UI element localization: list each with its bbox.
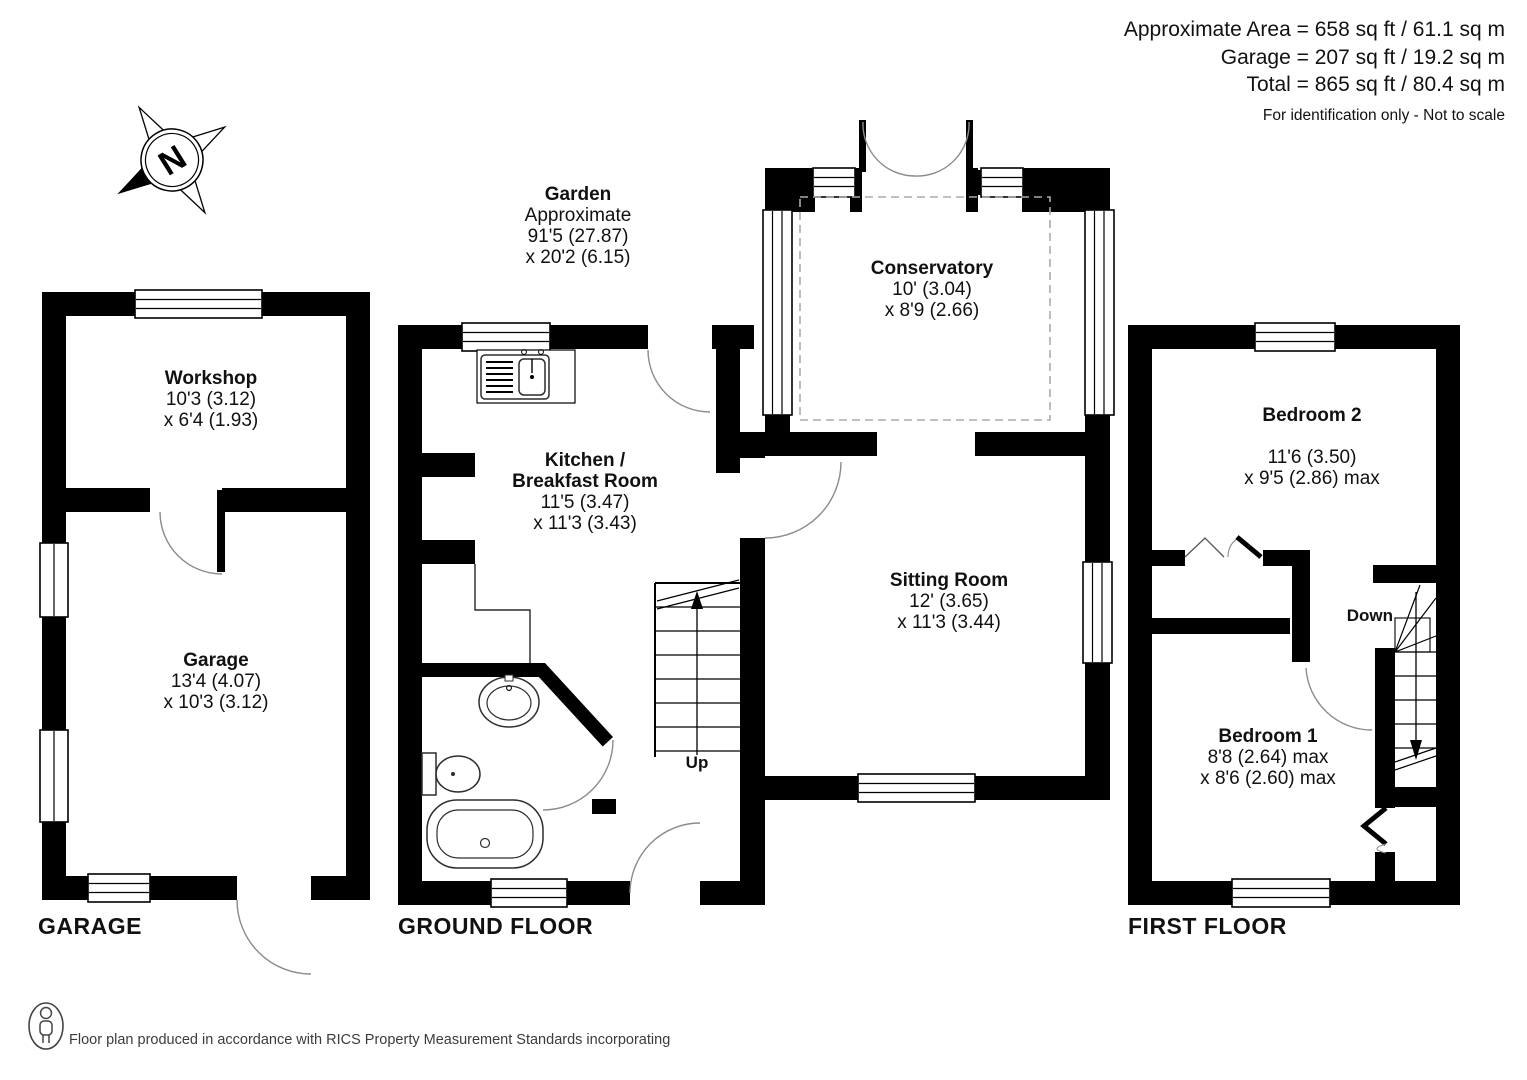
conservatory-label: Conservatory 10' (3.04) x 8'9 (2.66) bbox=[871, 258, 994, 321]
room-name: Breakfast Room bbox=[512, 471, 658, 492]
disclaimer-line: Floor plan produced in accordance with R… bbox=[69, 1032, 670, 1049]
window bbox=[462, 323, 550, 351]
window bbox=[491, 879, 567, 907]
door-arc bbox=[648, 350, 710, 412]
kitchen-sink-icon bbox=[477, 350, 575, 403]
window bbox=[1255, 323, 1335, 351]
garage-floor-label: GARAGE bbox=[38, 913, 142, 940]
stairs-up-label: Up bbox=[686, 753, 709, 773]
door-arc bbox=[237, 900, 311, 974]
door-arc bbox=[765, 462, 841, 538]
door-opening bbox=[237, 874, 311, 902]
north-compass-icon: N bbox=[87, 75, 258, 246]
door-leaf bbox=[217, 490, 225, 572]
garage-area-line: Garage = 207 sq ft / 19.2 sq m bbox=[1124, 44, 1505, 72]
bedroom1-label: Bedroom 1 8'8 (2.64) max x 8'6 (2.60) ma… bbox=[1200, 726, 1336, 789]
window bbox=[40, 730, 68, 822]
window bbox=[813, 168, 855, 197]
approximate-area-line: Approximate Area = 658 sq ft / 61.1 sq m bbox=[1124, 16, 1505, 44]
room-dim: 11'5 (3.47) bbox=[512, 492, 658, 513]
door-arc bbox=[160, 512, 222, 574]
window bbox=[858, 774, 975, 802]
room-dim: 10'3 (3.12) bbox=[164, 389, 258, 410]
door-opening bbox=[630, 879, 700, 907]
bifold-door bbox=[1185, 538, 1224, 557]
room-name: Garage bbox=[163, 650, 268, 671]
room-dim: x 9'5 (2.86) max bbox=[1244, 468, 1380, 489]
bifold-door bbox=[1364, 808, 1386, 853]
window bbox=[1085, 210, 1114, 415]
window bbox=[981, 168, 1023, 197]
worktop-outline bbox=[475, 564, 530, 663]
room-dim: x 11'3 (3.44) bbox=[890, 612, 1008, 633]
stairs-down bbox=[1395, 585, 1436, 770]
door-arc bbox=[1306, 668, 1372, 730]
window bbox=[40, 543, 68, 617]
room-name: Bedroom 2 bbox=[1244, 405, 1380, 426]
first-floor-label: FIRST FLOOR bbox=[1128, 913, 1287, 940]
door-arc bbox=[1228, 539, 1237, 557]
garden-name: Garden bbox=[525, 184, 632, 205]
floorplan-canvas: N bbox=[0, 0, 1527, 1080]
room-dim: x 10'3 (3.12) bbox=[163, 692, 268, 713]
french-doors bbox=[859, 120, 973, 176]
kitchen-label: Kitchen / Breakfast Room 11'5 (3.47) x 1… bbox=[512, 450, 658, 534]
floorplan-drawing: N bbox=[0, 0, 1527, 1080]
window bbox=[763, 210, 792, 415]
garden-dim2: x 20'2 (6.15) bbox=[525, 247, 632, 268]
room-dim: x 8'9 (2.66) bbox=[871, 300, 994, 321]
room-name: Sitting Room bbox=[890, 570, 1008, 591]
garden-approx: Approximate bbox=[525, 205, 632, 226]
window bbox=[88, 874, 150, 902]
window bbox=[1083, 562, 1112, 663]
stairs-up bbox=[655, 580, 740, 757]
bathtub-icon bbox=[427, 800, 543, 868]
workshop-label: Workshop 10'3 (3.12) x 6'4 (1.93) bbox=[164, 368, 258, 431]
not-to-scale-note: For identification only - Not to scale bbox=[1124, 102, 1505, 130]
stairs-down-label: Down bbox=[1347, 606, 1393, 626]
room-dim: 8'8 (2.64) max bbox=[1200, 747, 1336, 768]
total-area-line: Total = 865 sq ft / 80.4 sq m bbox=[1124, 71, 1505, 99]
angled-wall bbox=[535, 663, 613, 747]
room-dim: x 11'3 (3.43) bbox=[512, 513, 658, 534]
room-dim: 11'6 (3.50) bbox=[1244, 447, 1380, 468]
room-dim: 13'4 (4.07) bbox=[163, 671, 268, 692]
door-leaf bbox=[1237, 537, 1261, 557]
window bbox=[135, 290, 262, 318]
room-dim: x 6'4 (1.93) bbox=[164, 410, 258, 431]
disclaimer: Floor plan produced in accordance with R… bbox=[69, 999, 670, 1080]
garden-dim1: 91'5 (27.87) bbox=[525, 226, 632, 247]
room-name: Bedroom 1 bbox=[1200, 726, 1336, 747]
area-summary: Approximate Area = 658 sq ft / 61.1 sq m… bbox=[1124, 16, 1505, 129]
basin-icon bbox=[479, 675, 539, 727]
ground-floor-plan bbox=[398, 323, 765, 907]
room-name: Conservatory bbox=[871, 258, 994, 279]
window bbox=[1232, 879, 1330, 907]
garage-room-label: Garage 13'4 (4.07) x 10'3 (3.12) bbox=[163, 650, 268, 713]
ground-floor-label: GROUND FLOOR bbox=[398, 913, 593, 940]
sitting-room-label: Sitting Room 12' (3.65) x 11'3 (3.44) bbox=[890, 570, 1008, 633]
garden-label: Garden Approximate 91'5 (27.87) x 20'2 (… bbox=[525, 184, 632, 268]
room-dim: 10' (3.04) bbox=[871, 279, 994, 300]
sitting-room bbox=[740, 432, 1112, 905]
room-name: Workshop bbox=[164, 368, 258, 389]
person-icon bbox=[29, 1003, 63, 1049]
room-dim: x 8'6 (2.60) max bbox=[1200, 768, 1336, 789]
room-dim: 12' (3.65) bbox=[890, 591, 1008, 612]
toilet-icon bbox=[422, 753, 480, 795]
bedroom2-label: Bedroom 2 11'6 (3.50) x 9'5 (2.86) max bbox=[1244, 405, 1380, 489]
room-name: Kitchen / bbox=[512, 450, 658, 471]
